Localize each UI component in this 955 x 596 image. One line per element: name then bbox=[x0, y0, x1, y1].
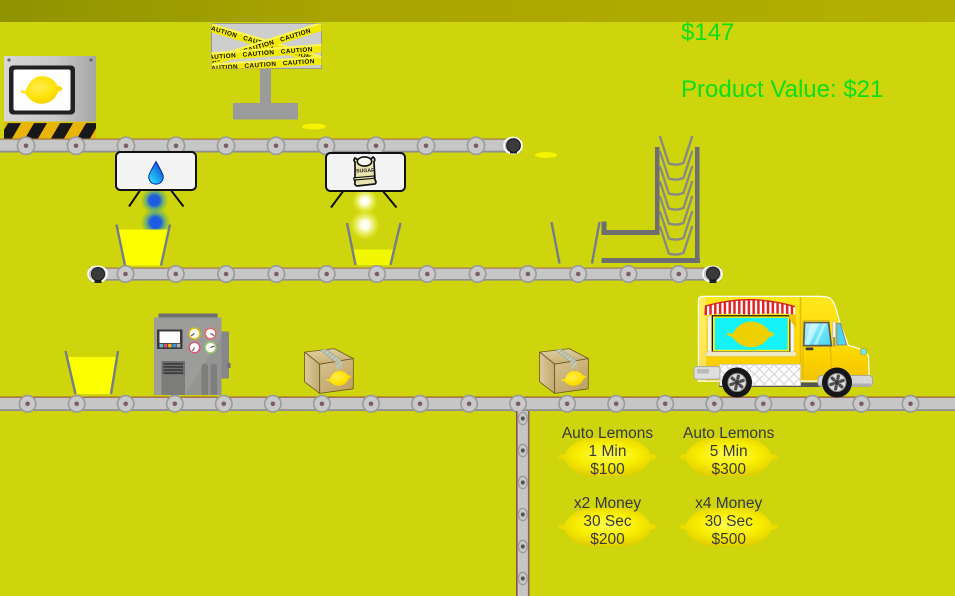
svg-text:SUGAR: SUGAR bbox=[356, 168, 375, 175]
svg-text:$200: $200 bbox=[590, 531, 625, 548]
svg-text:$300: $300 bbox=[711, 461, 746, 478]
svg-text:Product Value: $21: Product Value: $21 bbox=[681, 76, 883, 103]
svg-text:x2 Money: x2 Money bbox=[574, 495, 641, 512]
svg-text:$500: $500 bbox=[711, 531, 746, 548]
svg-text:30 Sec: 30 Sec bbox=[583, 513, 632, 530]
svg-text:Auto Lemons: Auto Lemons bbox=[562, 425, 654, 442]
svg-text:5 Min: 5 Min bbox=[710, 443, 748, 460]
svg-text:1 Min: 1 Min bbox=[589, 443, 627, 460]
svg-text:x4 Money: x4 Money bbox=[695, 495, 762, 512]
svg-text:$147: $147 bbox=[681, 19, 734, 46]
svg-text:Auto Lemons: Auto Lemons bbox=[683, 425, 775, 442]
svg-text:$100: $100 bbox=[590, 461, 625, 478]
svg-text:30 Sec: 30 Sec bbox=[705, 513, 754, 530]
